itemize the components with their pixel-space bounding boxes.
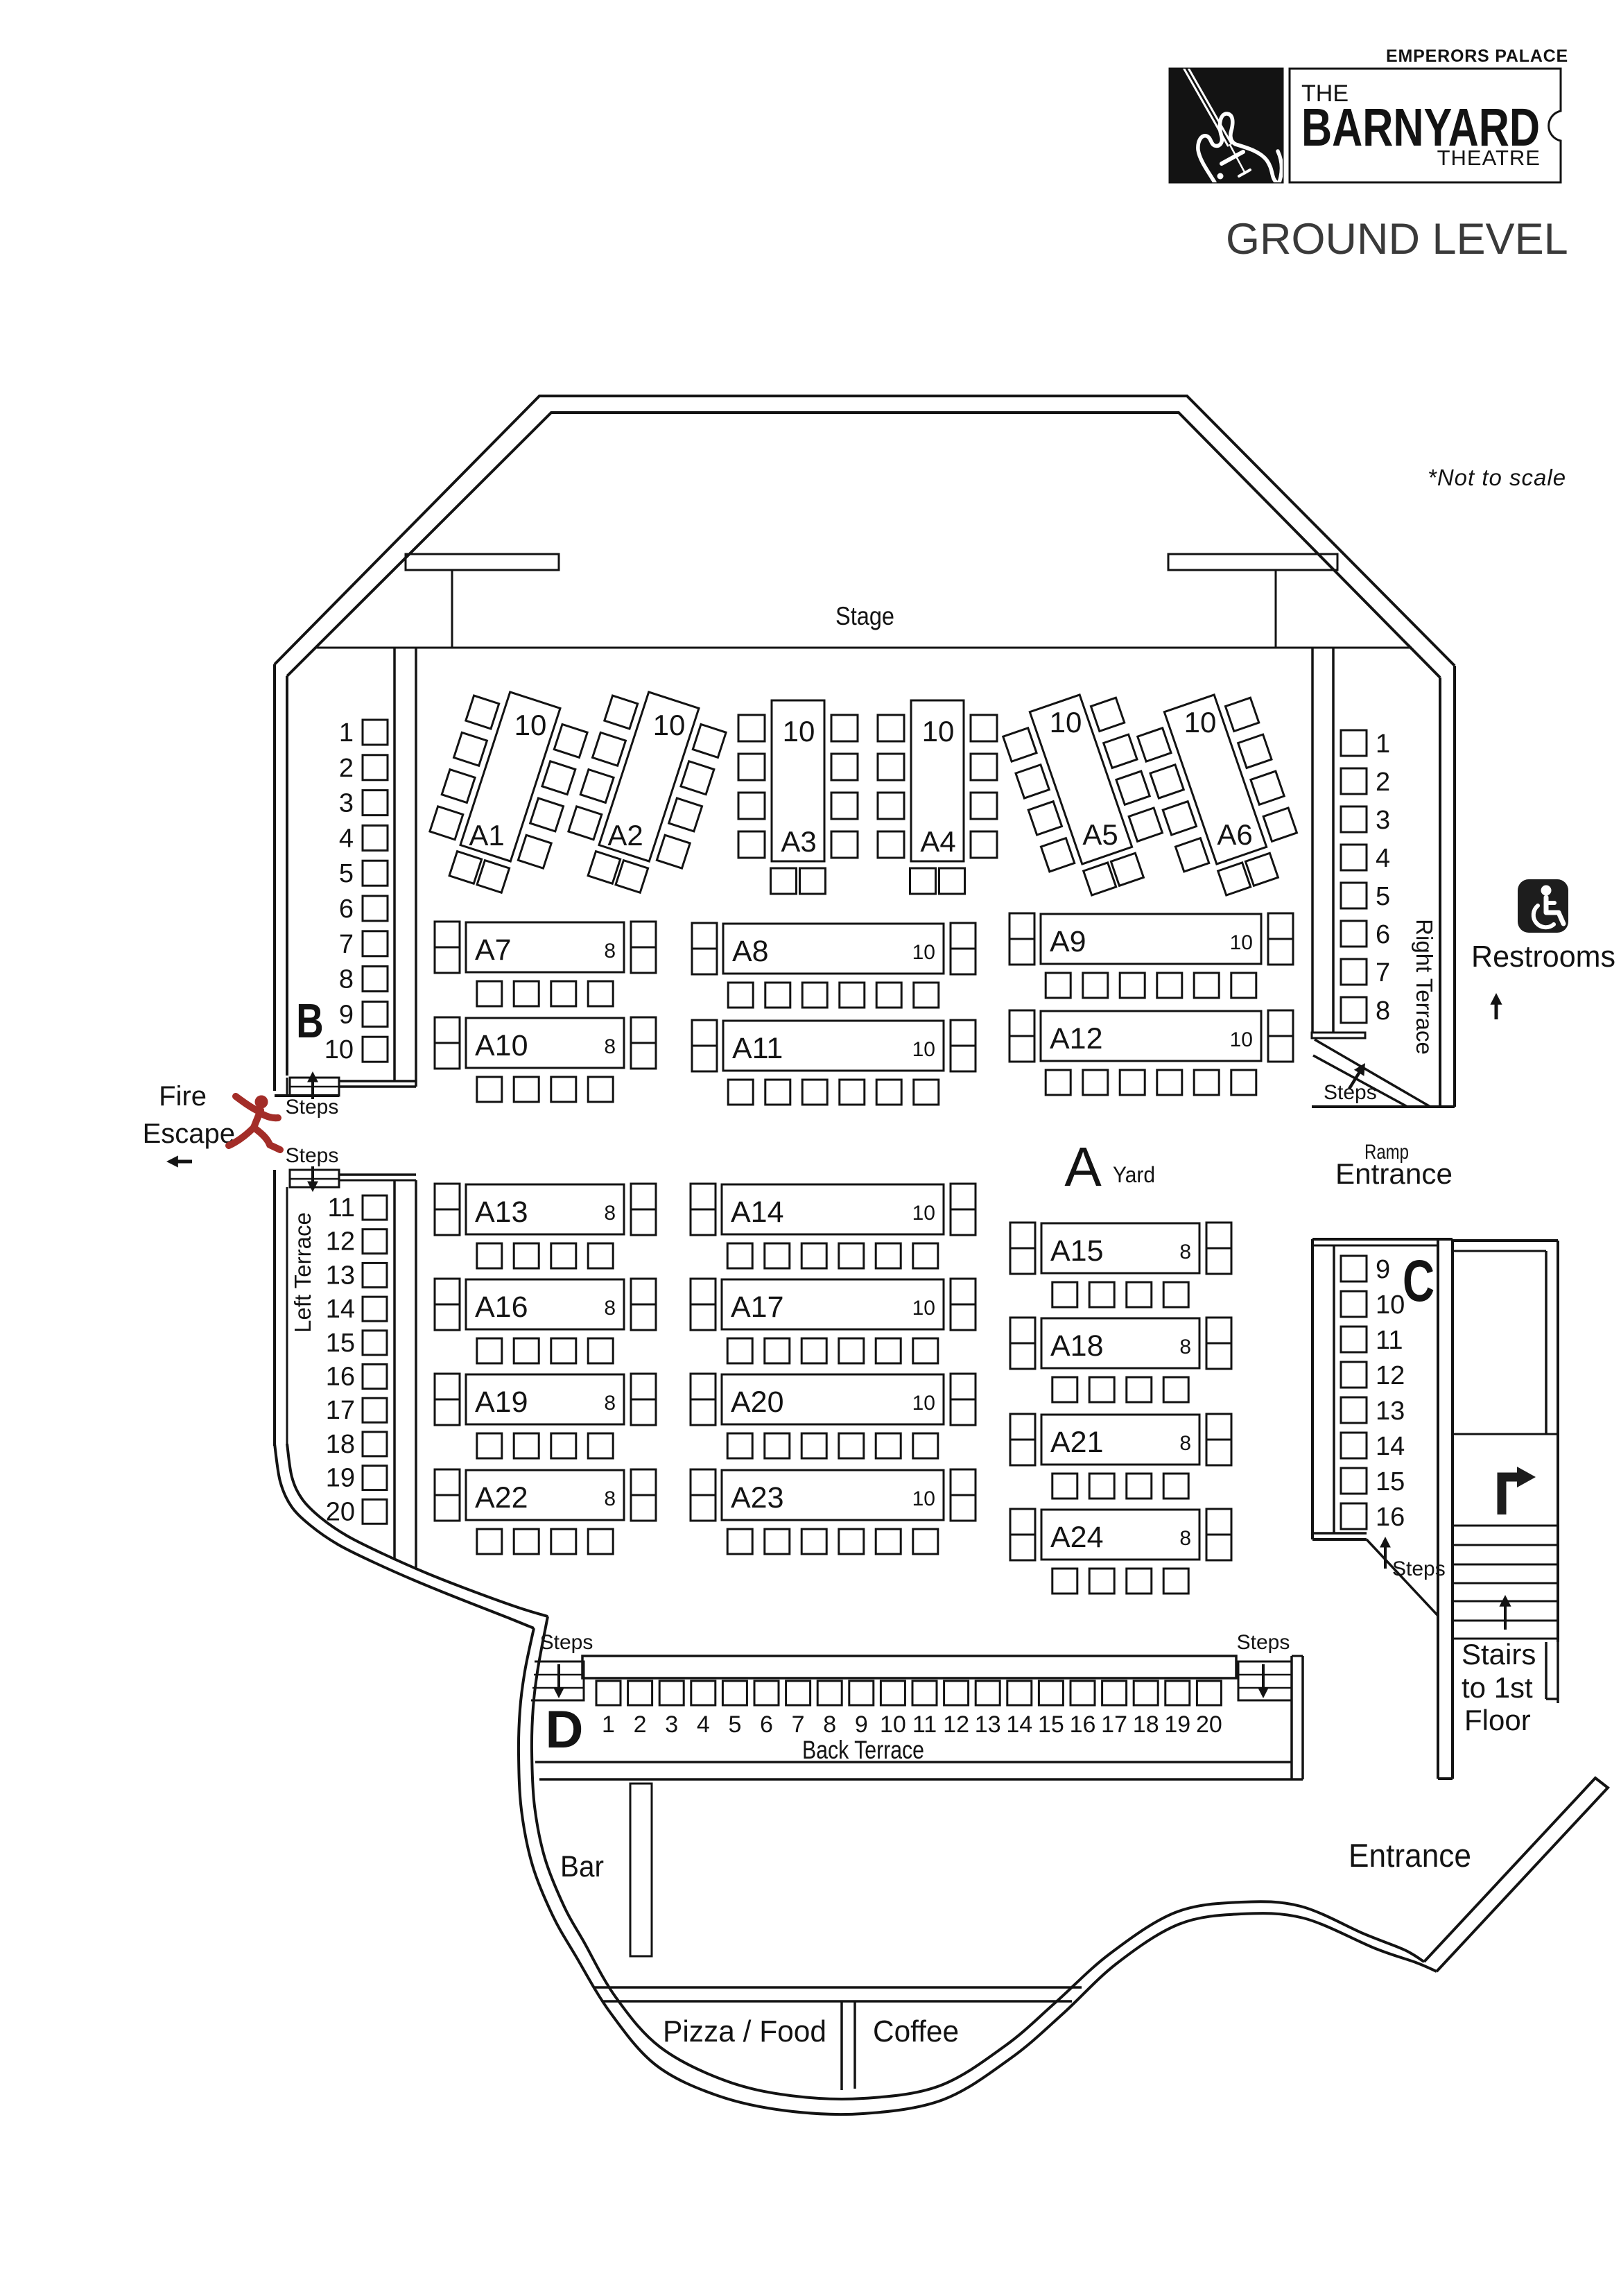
svg-text:7: 7 bbox=[339, 930, 354, 959]
svg-text:11: 11 bbox=[328, 1193, 355, 1223]
svg-text:15: 15 bbox=[326, 1329, 355, 1358]
svg-text:C: C bbox=[1403, 1248, 1434, 1313]
svg-text:8: 8 bbox=[1179, 1527, 1191, 1550]
svg-text:18: 18 bbox=[326, 1430, 355, 1459]
svg-text:D: D bbox=[546, 1700, 584, 1759]
svg-text:Steps: Steps bbox=[286, 1096, 339, 1119]
svg-text:8: 8 bbox=[823, 1711, 836, 1738]
svg-text:1: 1 bbox=[339, 718, 354, 748]
svg-text:A5: A5 bbox=[1082, 818, 1118, 851]
svg-text:A2: A2 bbox=[607, 819, 643, 852]
svg-text:10: 10 bbox=[912, 1202, 935, 1225]
svg-text:A15: A15 bbox=[1050, 1234, 1104, 1268]
svg-text:15: 15 bbox=[1376, 1467, 1405, 1496]
svg-text:Steps: Steps bbox=[286, 1144, 339, 1167]
svg-text:8: 8 bbox=[604, 1487, 616, 1510]
svg-text:6: 6 bbox=[1376, 920, 1390, 949]
svg-text:A23: A23 bbox=[731, 1481, 784, 1514]
svg-text:10: 10 bbox=[912, 1038, 935, 1061]
svg-text:11: 11 bbox=[1376, 1326, 1403, 1355]
svg-text:A19: A19 bbox=[475, 1386, 528, 1419]
svg-text:10: 10 bbox=[880, 1711, 906, 1738]
svg-text:16: 16 bbox=[326, 1363, 355, 1392]
svg-text:A11: A11 bbox=[732, 1032, 783, 1065]
svg-text:2: 2 bbox=[1376, 768, 1390, 797]
svg-text:10: 10 bbox=[1050, 706, 1082, 739]
svg-text:Fire: Fire bbox=[159, 1081, 207, 1112]
svg-text:13: 13 bbox=[326, 1261, 355, 1290]
svg-text:A20: A20 bbox=[731, 1386, 784, 1419]
svg-text:Escape: Escape bbox=[143, 1119, 235, 1149]
svg-text:THEATRE: THEATRE bbox=[1437, 146, 1541, 170]
svg-text:A8: A8 bbox=[732, 935, 769, 968]
svg-text:8: 8 bbox=[604, 1297, 616, 1320]
svg-text:6: 6 bbox=[339, 895, 354, 924]
svg-text:17: 17 bbox=[326, 1396, 355, 1425]
svg-text:8: 8 bbox=[604, 1202, 616, 1225]
svg-text:Entrance: Entrance bbox=[1335, 1157, 1453, 1190]
svg-text:15: 15 bbox=[1038, 1711, 1064, 1738]
svg-text:19: 19 bbox=[326, 1464, 355, 1493]
svg-text:3: 3 bbox=[665, 1711, 678, 1738]
svg-text:B: B bbox=[296, 994, 323, 1048]
svg-text:Steps: Steps bbox=[1237, 1631, 1290, 1654]
svg-text:10: 10 bbox=[1376, 1291, 1405, 1320]
svg-text:A22: A22 bbox=[475, 1481, 528, 1514]
svg-text:10: 10 bbox=[1184, 706, 1217, 739]
svg-text:3: 3 bbox=[1376, 806, 1390, 835]
svg-text:14: 14 bbox=[1006, 1711, 1032, 1738]
svg-text:to 1st: to 1st bbox=[1462, 1671, 1533, 1704]
svg-text:4: 4 bbox=[339, 824, 354, 853]
svg-text:10: 10 bbox=[324, 1035, 354, 1064]
svg-text:6: 6 bbox=[760, 1711, 773, 1738]
svg-text:12: 12 bbox=[326, 1227, 355, 1257]
svg-text:Coffee: Coffee bbox=[873, 2014, 959, 2048]
svg-text:9: 9 bbox=[339, 1000, 354, 1029]
svg-text:Stage: Stage bbox=[835, 602, 894, 630]
svg-text:*Not to scale: *Not to scale bbox=[1428, 465, 1566, 490]
svg-text:A7: A7 bbox=[475, 933, 512, 967]
svg-text:20: 20 bbox=[1196, 1711, 1222, 1738]
svg-text:19: 19 bbox=[1164, 1711, 1190, 1738]
svg-text:Steps: Steps bbox=[1324, 1081, 1377, 1104]
svg-text:A9: A9 bbox=[1050, 925, 1086, 958]
svg-text:13: 13 bbox=[1376, 1397, 1405, 1426]
svg-text:Floor: Floor bbox=[1464, 1704, 1531, 1736]
svg-text:A17: A17 bbox=[731, 1291, 784, 1324]
svg-text:A4: A4 bbox=[920, 825, 955, 858]
svg-text:7: 7 bbox=[1376, 958, 1390, 987]
svg-text:A12: A12 bbox=[1050, 1022, 1103, 1055]
svg-text:8: 8 bbox=[604, 1035, 616, 1058]
svg-text:8: 8 bbox=[1179, 1432, 1191, 1455]
svg-text:8: 8 bbox=[339, 965, 354, 994]
svg-text:A14: A14 bbox=[731, 1196, 784, 1229]
svg-text:14: 14 bbox=[1376, 1432, 1405, 1461]
svg-text:Steps: Steps bbox=[540, 1631, 593, 1654]
svg-text:A18: A18 bbox=[1050, 1329, 1104, 1363]
svg-text:18: 18 bbox=[1133, 1711, 1159, 1738]
svg-text:10: 10 bbox=[514, 709, 547, 741]
svg-text:16: 16 bbox=[1070, 1711, 1096, 1738]
svg-text:9: 9 bbox=[855, 1711, 868, 1738]
svg-text:Yard: Yard bbox=[1113, 1162, 1155, 1187]
svg-text:EMPERORS PALACE: EMPERORS PALACE bbox=[1386, 46, 1568, 66]
svg-text:10: 10 bbox=[912, 941, 935, 964]
svg-text:2: 2 bbox=[339, 754, 354, 783]
svg-text:2: 2 bbox=[634, 1711, 647, 1738]
svg-text:Entrance: Entrance bbox=[1349, 1837, 1471, 1874]
svg-text:A13: A13 bbox=[475, 1196, 528, 1229]
svg-text:12: 12 bbox=[943, 1711, 969, 1738]
svg-text:8: 8 bbox=[1376, 996, 1390, 1026]
svg-text:10: 10 bbox=[1230, 1028, 1253, 1051]
svg-text:13: 13 bbox=[975, 1711, 1001, 1738]
svg-text:Bar: Bar bbox=[560, 1850, 604, 1883]
svg-text:4: 4 bbox=[697, 1711, 710, 1738]
svg-text:16: 16 bbox=[1376, 1503, 1405, 1532]
svg-text:10: 10 bbox=[653, 709, 686, 741]
svg-text:GROUND LEVEL: GROUND LEVEL bbox=[1226, 215, 1568, 264]
svg-text:3: 3 bbox=[339, 789, 354, 818]
svg-text:10: 10 bbox=[1230, 931, 1253, 954]
svg-text:A10: A10 bbox=[475, 1029, 528, 1062]
svg-text:8: 8 bbox=[1179, 1241, 1191, 1263]
svg-text:A16: A16 bbox=[475, 1291, 528, 1324]
svg-text:9: 9 bbox=[1376, 1255, 1390, 1284]
svg-text:1: 1 bbox=[602, 1711, 615, 1738]
svg-text:A: A bbox=[1064, 1136, 1102, 1198]
svg-text:Back Terrace: Back Terrace bbox=[802, 1736, 924, 1764]
svg-text:5: 5 bbox=[728, 1711, 741, 1738]
svg-text:8: 8 bbox=[604, 1392, 616, 1415]
svg-text:11: 11 bbox=[912, 1711, 937, 1738]
svg-text:Restrooms: Restrooms bbox=[1471, 940, 1615, 974]
svg-text:8: 8 bbox=[1179, 1336, 1191, 1358]
svg-text:A3: A3 bbox=[781, 825, 816, 858]
svg-text:A21: A21 bbox=[1050, 1426, 1104, 1459]
svg-text:5: 5 bbox=[339, 859, 354, 888]
svg-text:10: 10 bbox=[912, 1487, 935, 1510]
svg-text:10: 10 bbox=[783, 715, 815, 748]
svg-text:Stairs: Stairs bbox=[1462, 1638, 1536, 1671]
svg-text:A24: A24 bbox=[1050, 1521, 1104, 1554]
svg-text:Left Terrace: Left Terrace bbox=[290, 1212, 315, 1333]
svg-text:4: 4 bbox=[1376, 844, 1390, 873]
svg-text:A6: A6 bbox=[1217, 818, 1252, 851]
svg-text:Pizza / Food: Pizza / Food bbox=[663, 2014, 826, 2048]
svg-text:10: 10 bbox=[912, 1392, 935, 1415]
svg-text:8: 8 bbox=[604, 940, 616, 963]
svg-text:5: 5 bbox=[1376, 882, 1390, 911]
svg-text:Right Terrace: Right Terrace bbox=[1412, 919, 1437, 1055]
svg-text:20: 20 bbox=[326, 1497, 355, 1526]
svg-text:A1: A1 bbox=[469, 819, 504, 852]
svg-text:12: 12 bbox=[1376, 1361, 1405, 1390]
svg-text:7: 7 bbox=[792, 1711, 805, 1738]
svg-text:1: 1 bbox=[1376, 730, 1390, 759]
svg-text:17: 17 bbox=[1101, 1711, 1127, 1738]
svg-text:10: 10 bbox=[912, 1297, 935, 1320]
svg-text:14: 14 bbox=[326, 1295, 355, 1324]
svg-text:10: 10 bbox=[922, 715, 955, 748]
